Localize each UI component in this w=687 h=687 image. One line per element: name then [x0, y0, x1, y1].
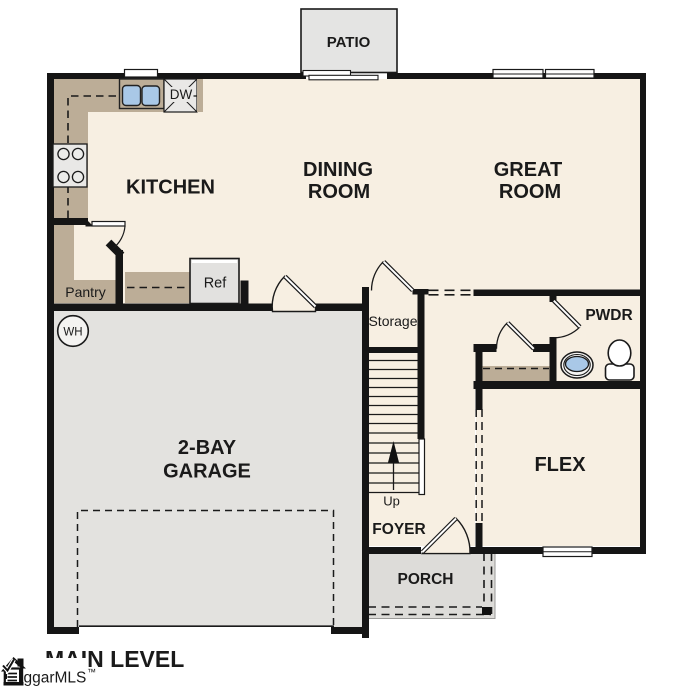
svg-text:GARAGE: GARAGE	[163, 461, 251, 483]
svg-text:ROOM: ROOM	[499, 181, 561, 203]
svg-text:ggarMLS: ggarMLS	[24, 670, 87, 687]
svg-text:WH: WH	[63, 327, 82, 339]
svg-text:Pantry: Pantry	[65, 284, 105, 300]
svg-text:FLEX: FLEX	[534, 454, 586, 476]
svg-text:DW: DW	[170, 87, 193, 102]
svg-text:Storage: Storage	[368, 313, 417, 329]
svg-text:FOYER: FOYER	[372, 521, 425, 538]
svg-text:PWDR: PWDR	[585, 307, 632, 324]
svg-text:Up: Up	[383, 494, 400, 509]
svg-text:™: ™	[87, 667, 96, 677]
svg-text:GREAT: GREAT	[494, 159, 563, 181]
svg-text:KITCHEN: KITCHEN	[126, 177, 215, 199]
svg-text:DINING: DINING	[303, 159, 373, 181]
svg-text:ROOM: ROOM	[308, 181, 370, 203]
svg-text:2-BAY: 2-BAY	[178, 437, 237, 459]
svg-text:Ref: Ref	[204, 276, 228, 292]
svg-text:PORCH: PORCH	[398, 571, 454, 588]
svg-text:PATIO: PATIO	[327, 34, 371, 51]
